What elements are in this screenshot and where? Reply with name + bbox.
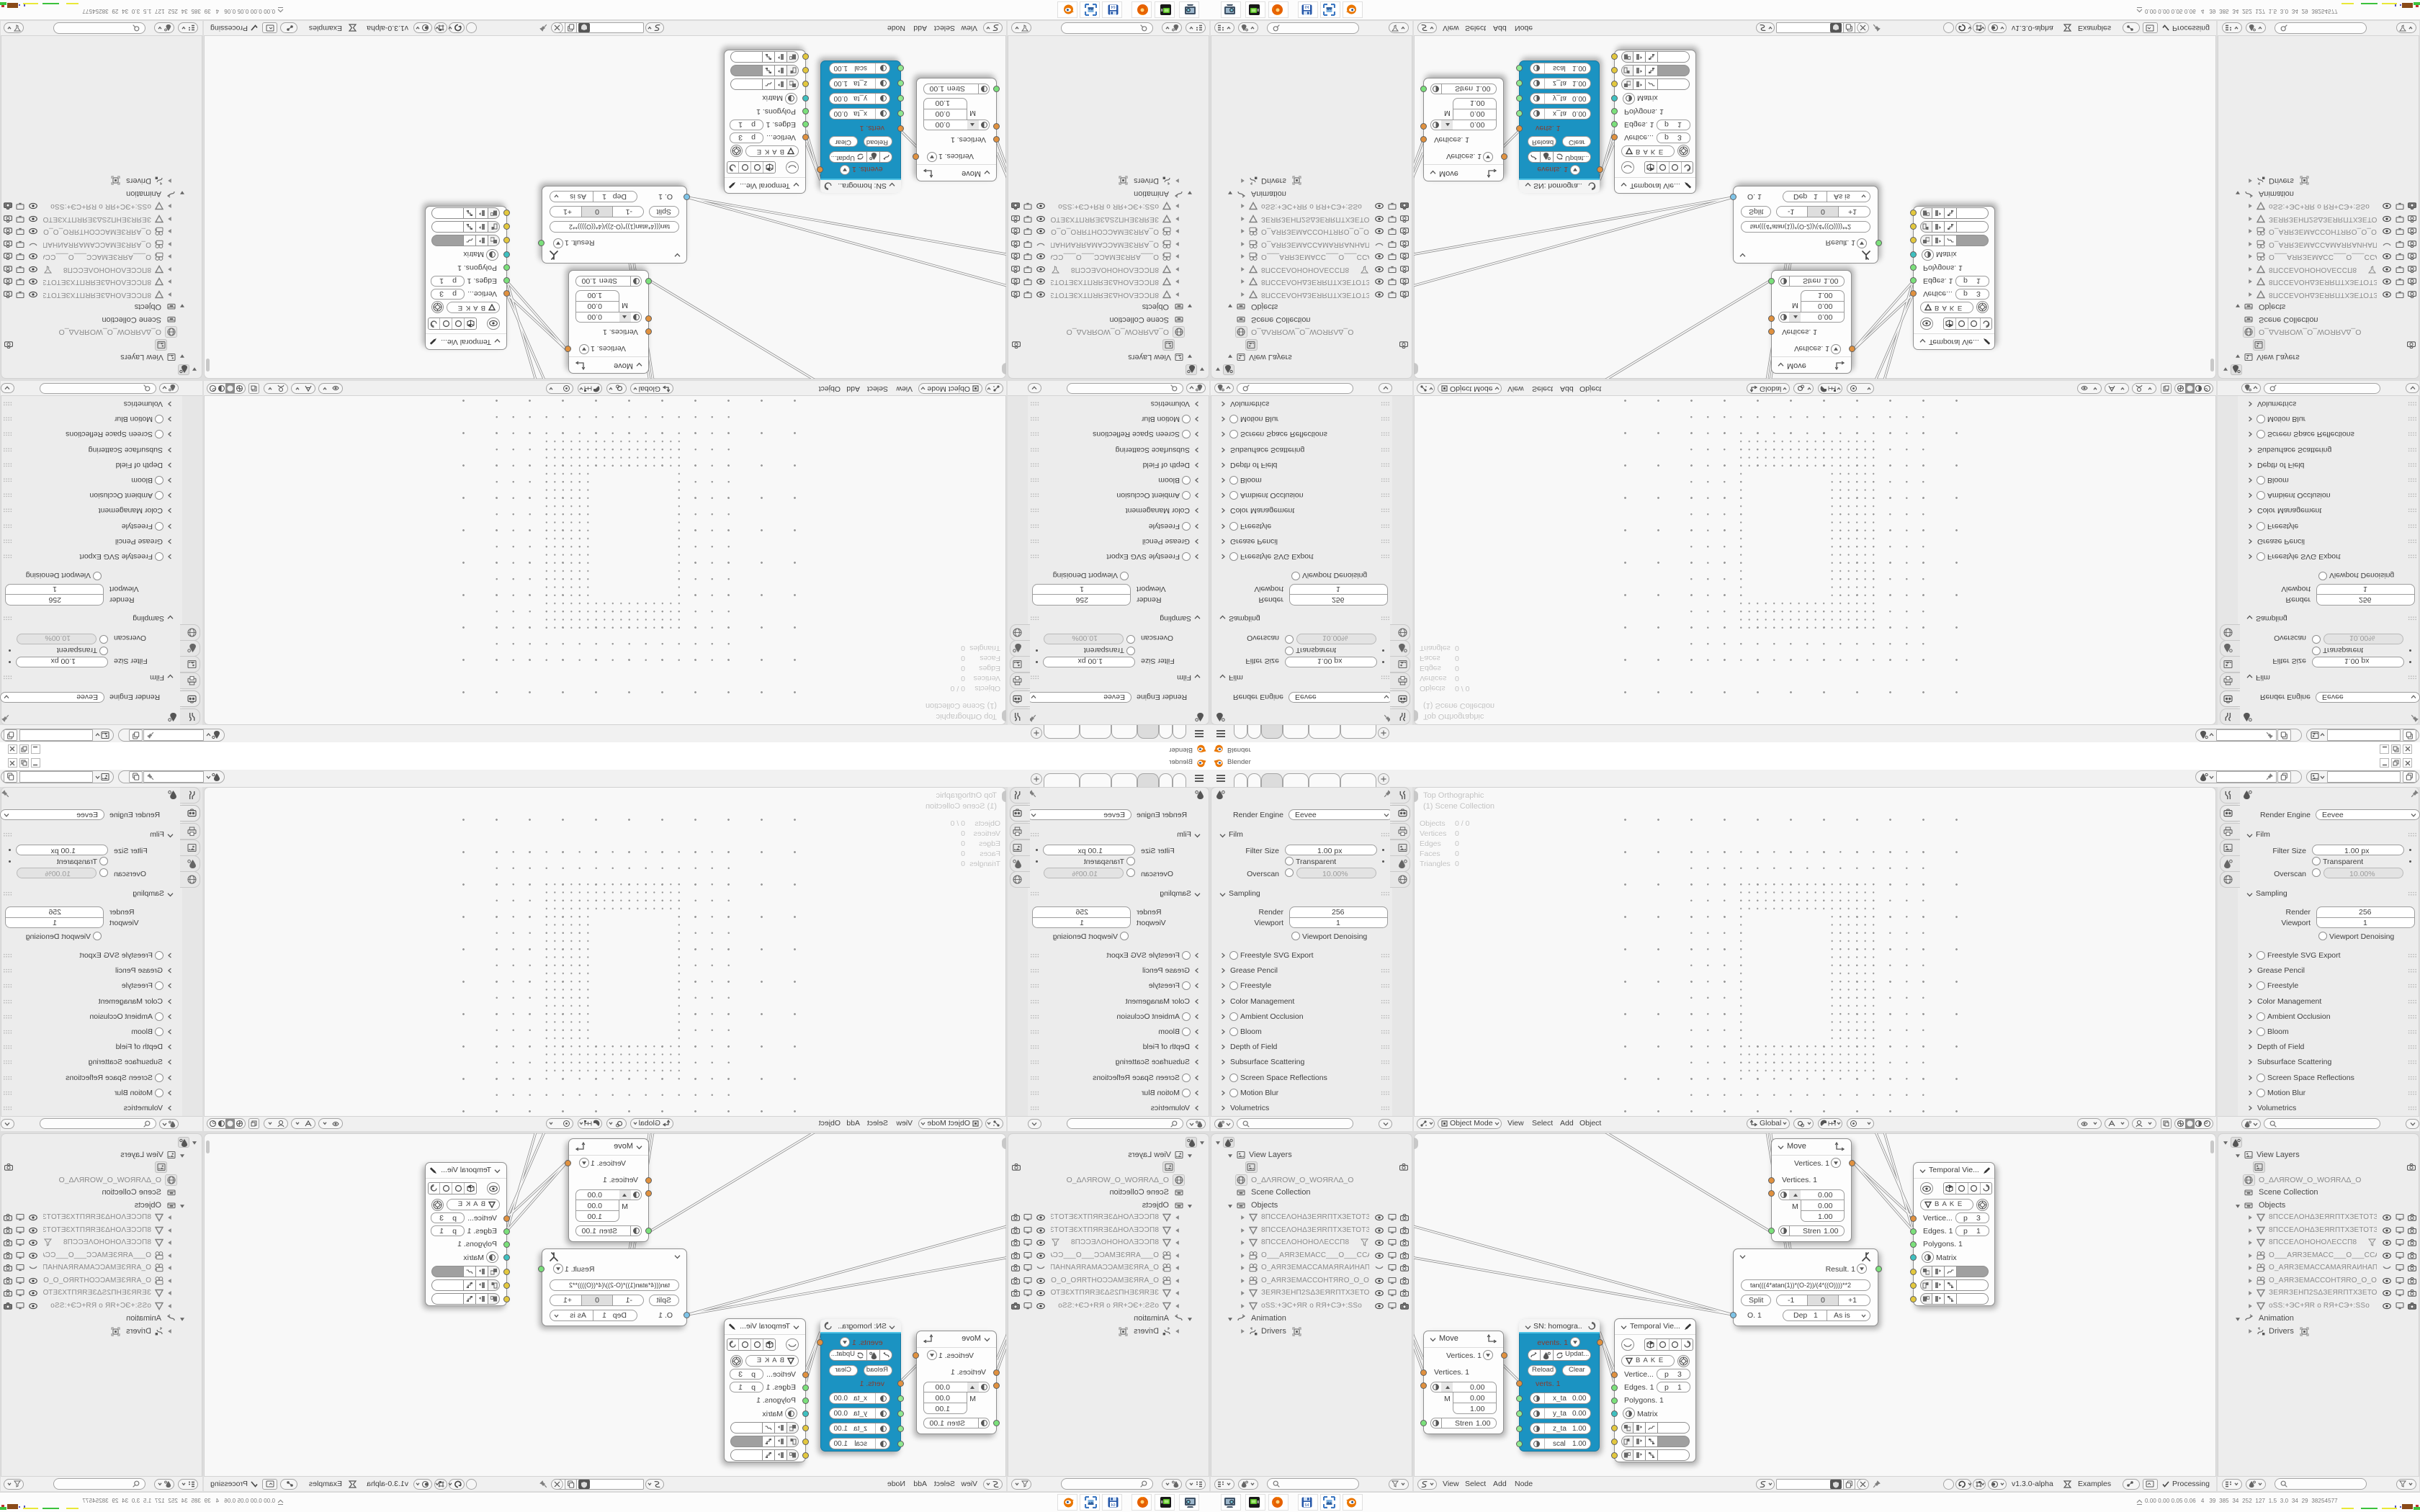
svg-text:64: 64 [1111,1503,1115,1508]
svg-text:64: 64 [1111,4,1115,9]
svg-text:64: 64 [1304,1503,1309,1508]
svg-text:64: 64 [1304,4,1309,9]
